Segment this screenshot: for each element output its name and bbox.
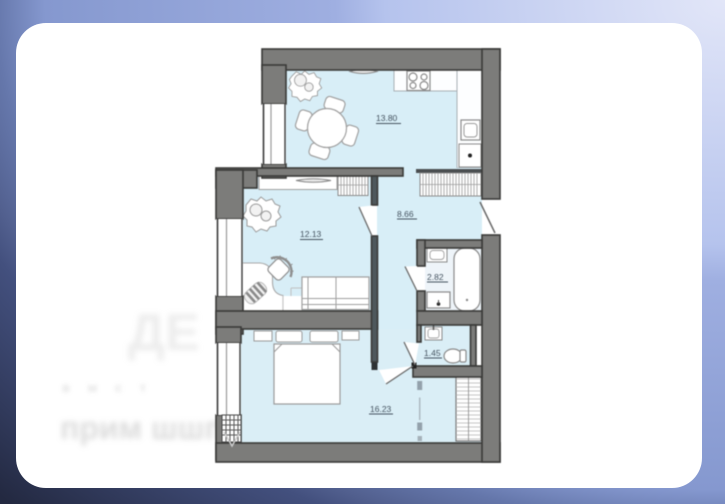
svg-text:12.13: 12.13 — [300, 229, 322, 239]
svg-text:1.45: 1.45 — [424, 348, 441, 358]
svg-text:8.66: 8.66 — [397, 209, 414, 219]
svg-text:2.82: 2.82 — [427, 272, 444, 282]
svg-text:16.23: 16.23 — [370, 404, 392, 414]
svg-text:13.80: 13.80 — [376, 113, 398, 123]
